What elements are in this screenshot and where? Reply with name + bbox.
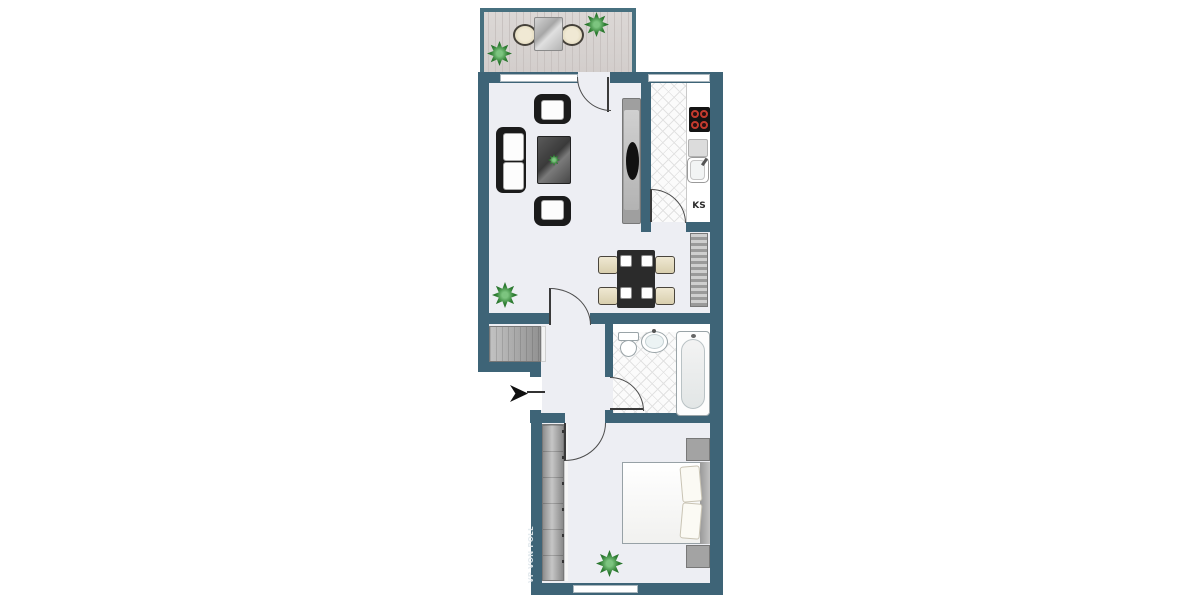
bed-headboard [700,462,710,544]
window [500,74,578,82]
wall-left-upper [478,72,489,372]
radiator [690,233,708,307]
faucet-icon [652,329,656,333]
entrance-threshold [527,391,545,393]
armchair-cushion [541,100,564,120]
fridge-label: KS [687,201,711,211]
wall-alcove-bottom [478,362,541,372]
nightstand [686,438,710,461]
window [573,585,638,593]
burner-icon [700,121,708,129]
wall-right [710,72,723,595]
brand-watermark: VP VON POLL [527,541,541,583]
entrance-arrow-icon [510,385,528,402]
wardrobe [542,424,564,581]
bedroom-door-opening [565,413,605,423]
tv [626,142,639,180]
burner-icon [700,110,708,118]
dining-chair [655,287,675,305]
stove [689,107,710,132]
sofa-cushion [503,162,524,190]
wall-living-bottom [478,313,723,324]
dining-chair [598,287,618,305]
pillow [679,465,702,503]
balcony-rail-left [480,8,484,77]
hall-closet [489,326,541,362]
bathtub-basin [681,339,705,409]
sink-cabinet [688,139,708,157]
plant-icon [487,41,512,66]
entrance-opening [530,377,542,410]
place-setting [641,255,653,267]
plant-icon [584,12,609,37]
pillow [679,502,702,540]
balcony-rail-right [632,8,636,77]
place-setting [641,287,653,299]
dining-chair [655,256,675,274]
nightstand [686,545,710,568]
burner-icon [691,110,699,118]
burner-icon [691,121,699,129]
place-setting [620,287,632,299]
sofa-cushion [503,133,524,161]
place-setting [620,255,632,267]
washbasin-bowl [645,334,664,349]
floor-plan-canvas: KS VP [0,0,1200,600]
armchair-cushion [541,200,564,220]
dining-chair [598,256,618,274]
window [648,74,710,82]
balcony-rail-top [480,8,636,12]
balcony-bistro-table [534,17,563,51]
kitchen-door-opening [651,222,686,232]
hall-closet-edge [541,326,546,362]
faucet-icon [691,334,696,338]
balcony-chair-right [560,24,584,46]
hallway-floor [541,324,605,413]
